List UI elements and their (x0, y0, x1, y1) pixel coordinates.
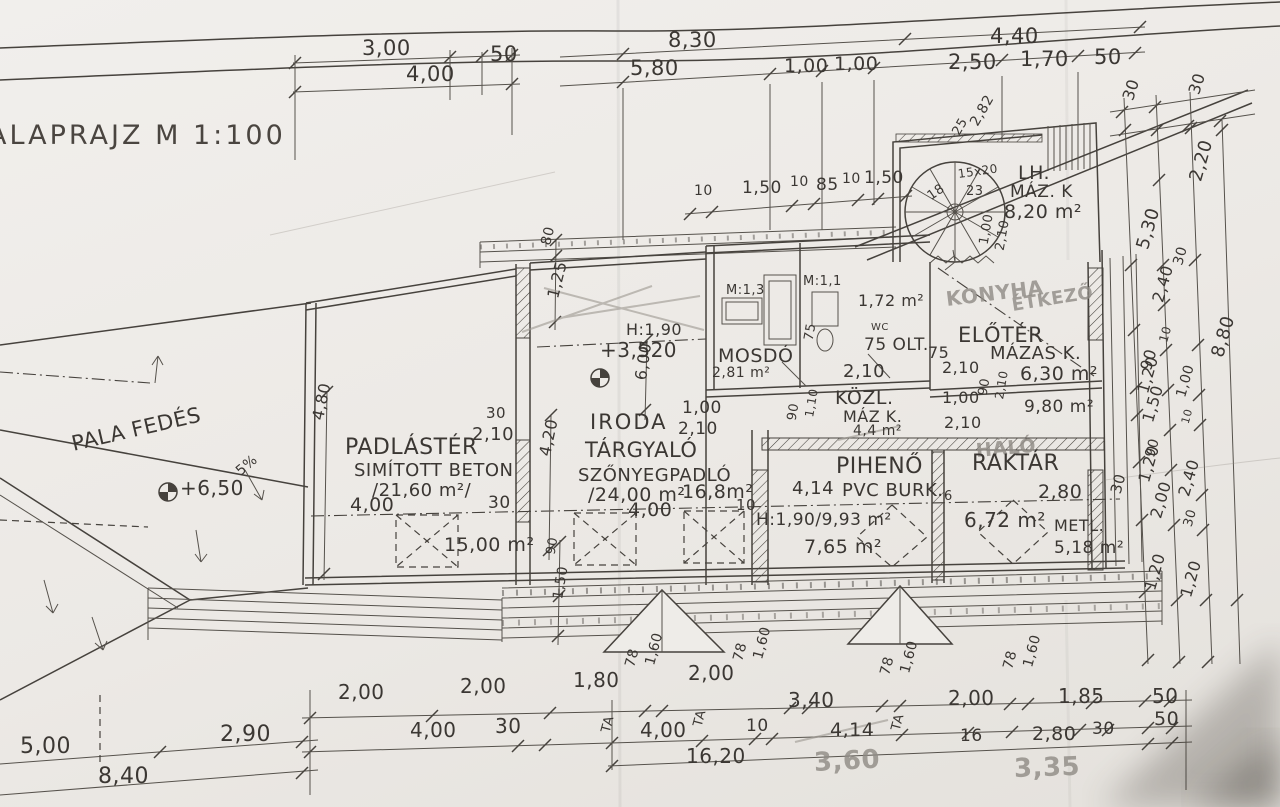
dim: 30 (486, 406, 506, 421)
dim: 1,50 (551, 565, 571, 600)
dim: 30 (1186, 71, 1208, 96)
dim: 1,00 (784, 57, 828, 76)
dim: 1,00 (834, 55, 878, 74)
scale-note: M:1,1 (803, 275, 842, 288)
pencil-dim: 3,60 (813, 747, 880, 776)
dim: 50 (1152, 686, 1178, 706)
dim: 10 (842, 172, 861, 186)
dim: 2,00 (688, 663, 735, 683)
dim: 10 (736, 498, 756, 513)
dim: 3,00 (362, 38, 411, 59)
dim: 30 (1092, 721, 1115, 738)
room-label-raktar: RAKTÁR (972, 453, 1059, 475)
dim: 75 (803, 322, 819, 342)
dim: 50 (1154, 710, 1179, 729)
window-mark: TA (692, 709, 709, 729)
drawing-title: ALAPRAJZ M 1:100 (0, 122, 286, 149)
dim: 2,00 (338, 682, 385, 702)
room-label-targyalo: TÁRGYALÓ (585, 440, 697, 461)
room-label-iroda: IRODA (590, 412, 667, 433)
room-label-piheno: PIHENŐ (836, 456, 923, 478)
dim: 78 (623, 647, 641, 669)
dim: 78 (731, 641, 749, 663)
dim: 4,20 (537, 418, 560, 458)
labels-layer: ALAPRAJZ M 1:100 3,00504,008,304,405,801… (0, 0, 1280, 807)
area-note: 15,00 m² (444, 536, 535, 555)
room-label-mosdo: MOSDÓ (718, 347, 794, 366)
dim: 2,50 (948, 52, 997, 73)
area-raktar: 6,72 m² (964, 510, 1046, 530)
dim: 10 (1157, 325, 1173, 344)
dim: 2,80 (1038, 483, 1082, 502)
area-note: 9,80 m² (1024, 399, 1094, 416)
dim: 10 (790, 175, 809, 189)
dim: 85 (816, 177, 839, 194)
headroom-note: H:1,90 (626, 322, 682, 338)
dim: 1,20 (1136, 444, 1162, 485)
dim: 1,85 (1058, 686, 1105, 706)
dim: 5,30 (1134, 206, 1163, 251)
dim: 8,30 (668, 30, 717, 51)
dim: 3,40 (788, 690, 835, 710)
dim: 2,10 (678, 421, 718, 438)
dim: 1,60 (751, 625, 773, 661)
dim: 78 (878, 655, 896, 677)
area-mosdo: 2,81 m² (712, 366, 770, 380)
dim: 8,80 (1209, 314, 1238, 359)
dim: 4,00 (350, 496, 394, 515)
dim: 50 (490, 44, 518, 65)
slope-note: 5% (234, 453, 261, 479)
dim: 6,00 (633, 342, 654, 381)
level-note: +6,50 (180, 478, 244, 498)
dim: 4,14 (830, 721, 874, 740)
dim: 2,40 (1176, 458, 1202, 499)
window-mark: TA (890, 713, 907, 733)
dim: 1,60 (1021, 633, 1043, 669)
dim: 5,00 (20, 736, 71, 758)
finish-label: SIMÍTOTT BETON (354, 462, 513, 480)
dim: 16 (960, 728, 983, 745)
dim: 1,00 (1174, 363, 1197, 399)
dim: 2,10 (994, 219, 1012, 252)
stair-riser-note: 15x20 (957, 162, 998, 179)
scale-note: M:1,3 (726, 284, 765, 297)
finish-label: MÁZ. K (1010, 184, 1073, 201)
dim: 2,82 (968, 93, 997, 129)
dim: 1,00 (942, 390, 980, 406)
area-piheno: H:1,90/9,93 m² (756, 512, 892, 529)
dim: 90 (545, 536, 561, 556)
dim: 5,80 (630, 58, 679, 79)
dim: 2,10 (843, 363, 885, 381)
dim: 4,80 (310, 382, 333, 422)
dim: 4,00 (406, 64, 455, 85)
dim: 10 (746, 718, 769, 735)
dim: 30 (1171, 245, 1190, 267)
dim: 30 (1120, 77, 1142, 102)
dim: 10 (694, 184, 713, 198)
roof-note: PALA FEDÉS (70, 405, 203, 455)
area-lh: 8,20 m² (1004, 203, 1082, 222)
dim: 6 (944, 490, 953, 503)
area-kozl: 4,4 m² (853, 424, 902, 438)
dim: 2,40 (1150, 264, 1176, 305)
area-note: 7,65 m² (804, 538, 882, 557)
dim: 30 (1182, 508, 1199, 528)
finish-label: PVC BURK. (842, 482, 944, 500)
dim: 30 (488, 495, 511, 512)
dim: 1,20 (1142, 552, 1168, 593)
stair-step-num: 18 (925, 182, 947, 203)
dim: 4,14 (792, 480, 834, 498)
dim: 90 (786, 402, 802, 422)
dim: 2,00 (460, 676, 507, 696)
area-eloter: 6,30 m² (1020, 365, 1098, 384)
dim: 4,00 (640, 720, 687, 740)
window-mark: TA (600, 715, 617, 735)
dim: 1,20 (1178, 559, 1204, 600)
dim: 1,60 (898, 639, 920, 675)
stair-step-num: 23 (966, 185, 984, 198)
dim: 2,20 (1187, 138, 1216, 183)
dim: 2,00 (948, 688, 995, 708)
dim: 16,20 (686, 746, 746, 766)
dim: 1,25 (545, 260, 570, 300)
dim: 4,00 (410, 720, 457, 740)
dim: 2,10 (472, 426, 514, 444)
dim: 2,90 (220, 724, 271, 746)
floorplan-scan: ALAPRAJZ M 1:100 3,00504,008,304,405,801… (0, 0, 1280, 807)
dim: 1,50 (864, 170, 904, 187)
finish-label: METL. (1054, 518, 1104, 534)
dim: 8,40 (98, 766, 149, 788)
dim: 1,00 (682, 400, 722, 417)
dim: 2,00 (1148, 480, 1174, 521)
dim: 4,40 (990, 26, 1039, 47)
dim: 1,10 (803, 388, 820, 418)
dim: 80 (539, 225, 557, 247)
dim: 2,10 (993, 370, 1010, 400)
dim: 1,70 (1020, 49, 1069, 70)
note: 75 OLT. (864, 337, 929, 354)
room-label-padlaster: PADLÁSTÉR (345, 437, 478, 459)
room-label-lh: LH. (1018, 164, 1050, 183)
dim: 2,10 (944, 415, 982, 431)
dim: 1,60 (643, 631, 665, 667)
room-label-wc: WC (871, 323, 889, 333)
dim: 2,80 (1032, 725, 1076, 744)
dim: 2,10 (942, 360, 980, 376)
dim: 30 (1109, 472, 1129, 495)
area-note: 1,72 m² (858, 293, 924, 309)
dim: 4,00 (628, 501, 672, 520)
dim: 30 (495, 716, 521, 736)
finish-label: MÁZAS K. (990, 345, 1081, 363)
dim: 1,50 (742, 180, 782, 197)
dim: 10 (1180, 408, 1195, 425)
dim: 78 (1001, 649, 1019, 671)
dim: 1,80 (573, 670, 620, 690)
dim: 90 (977, 377, 993, 397)
pencil-dim: 3,35 (1014, 754, 1081, 782)
area-note: 5,18 m² (1054, 540, 1124, 557)
room-label-kozl: KÖZL. (835, 389, 894, 408)
dim: 50 (1094, 47, 1122, 68)
